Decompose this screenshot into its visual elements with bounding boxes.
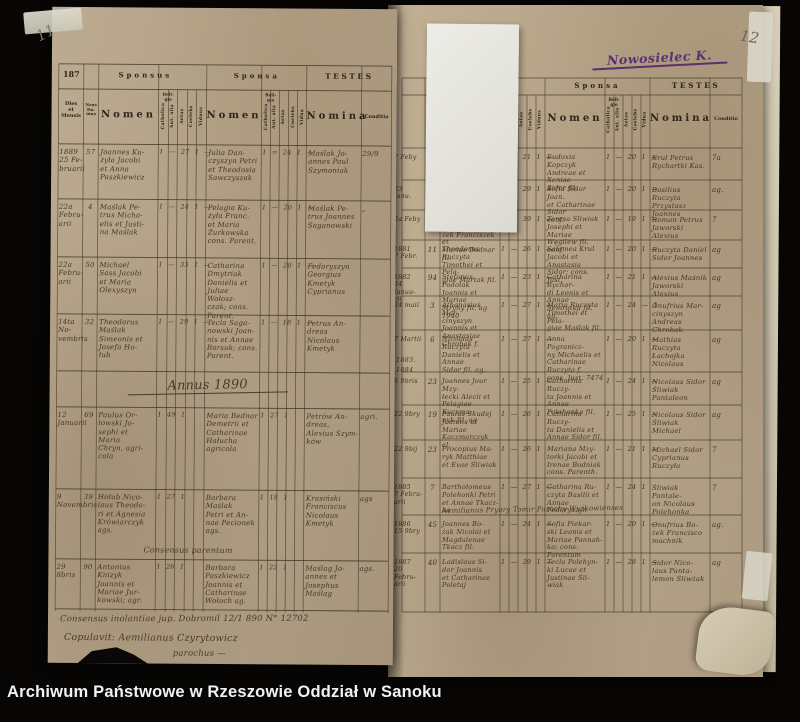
entry-house-number: 69 bbox=[82, 411, 95, 419]
entry-bride-name: Catharina Ruczy- ta Danielis et Annae Si… bbox=[547, 411, 604, 442]
column-group-testes: TESTES bbox=[307, 72, 392, 82]
column-group-testes: TESTES bbox=[650, 81, 742, 90]
column-header-nomina: Nomina bbox=[306, 111, 361, 122]
entry-groom-name: Bartholomeus Polehonki Petri et Annae Tk… bbox=[442, 484, 499, 515]
entry-witnesses: Petrów An- dreas, Alexius Szym- ków bbox=[306, 413, 358, 446]
entry-bride-marks: 1 — 20 1 — bbox=[606, 336, 649, 344]
entry-conditio: „ bbox=[362, 205, 390, 213]
entry-bride-name: Barbara Paszkiewicz Joannis et Catharina… bbox=[205, 564, 257, 606]
entry-groom-name: Michael Sass Jacobi et Maria Olexyszyn bbox=[99, 261, 156, 294]
entry-conditio: 7 bbox=[712, 484, 740, 492]
entry-groom-marks: 1 — 26 1 bbox=[501, 411, 544, 419]
entry-house-number: 90 bbox=[81, 563, 94, 571]
column-header-coelebs: Coelebs bbox=[189, 101, 194, 131]
column-header-coelebs: Coelebs bbox=[291, 102, 296, 132]
entry-conditio: 7 bbox=[712, 446, 740, 454]
entry-date: 29 8bris bbox=[56, 563, 80, 580]
entry-bride-marks: 1 27 1 bbox=[260, 412, 303, 420]
entry-bride-name: Sofia Piekar- ski Leonis et Mariae Panna… bbox=[547, 521, 604, 560]
entry-witnesses: Nicolaus Sidor Śliwiak Pantaleon bbox=[652, 378, 709, 402]
entry-conditio: 7 bbox=[712, 216, 740, 224]
tape-scrap-top-right bbox=[747, 12, 773, 83]
entry-groom-name: Maślak Pe- trus Micha- elis et Justi- na… bbox=[100, 203, 157, 236]
entry-witnesses: Onufrius Mar- cinyszyn Andreas Chrobak bbox=[652, 302, 709, 334]
entry-bride-marks: 1 — 28 1 — bbox=[606, 559, 649, 567]
entry-house-number: 3 bbox=[426, 302, 439, 310]
entry-bride-name: Catharina Ru- czyta Basilii et Annae Fed… bbox=[547, 484, 604, 515]
entry-witnesses: Fedoryszyn Georgius Kmetyk Cyprianus bbox=[307, 263, 359, 296]
column-header-dies: Dies et Mensis bbox=[59, 102, 84, 119]
entry-groom-name: Paulus Skudej Joannis et Mariae Kaczmarc… bbox=[442, 411, 499, 450]
entry-witnesses: Mathias Ruczyta Łachojka Nicolaus bbox=[652, 336, 709, 368]
entry-conditio: ag bbox=[712, 378, 740, 386]
entry-groom-name: Theodorus Maślak Simeonis et Josefa Ho- … bbox=[99, 318, 156, 360]
consensus-interline-note: Consensus parentum bbox=[143, 545, 343, 556]
archival-scan-photo: Sponsa TESTES Nomen Reli- gio Reli- gio … bbox=[0, 0, 800, 722]
column-header-aut-alia: Aut. alia bbox=[616, 105, 621, 135]
entry-witnesses: Michael Sidor Cyprianus Ruczyła bbox=[652, 446, 709, 470]
entry-bride-marks: 1 — 20 1 — bbox=[606, 154, 649, 162]
entry-house-number: 23 bbox=[426, 378, 439, 386]
column-group-sponsa: Sponsa bbox=[207, 71, 307, 81]
entry-groom-marks: 1 — 24 1 — bbox=[159, 204, 205, 212]
entry-conditio: ag bbox=[712, 302, 740, 310]
entry-date: 12 Januarii bbox=[57, 411, 81, 428]
entry-witnesses: Maślag Jo- annes et Josephus Maślag bbox=[305, 565, 357, 598]
entry-conditio: agri. bbox=[360, 413, 388, 421]
entry-witnesses: Basilius Ruczyta Przystasz Joannes bbox=[652, 186, 709, 218]
column-header-conditio: Conditio bbox=[362, 115, 392, 121]
column-header-catholica: Catholica bbox=[607, 105, 612, 135]
entry-groom-marks: 1 — 29 1 — bbox=[501, 559, 544, 567]
consensus-footer-note: Consensus inolantiae jup. Dobromil 12/1 … bbox=[60, 614, 390, 625]
entry-date: 9 Novembris bbox=[57, 493, 81, 510]
entry-witnesses: Krul Petrus Rychartki Kas. bbox=[652, 154, 709, 170]
entry-house-number: 6 bbox=[426, 336, 439, 344]
entry-bride-name: Maria Ruczyta Timothei et Pela- giae Maś… bbox=[547, 302, 604, 333]
entry-bride-marks: 1 = 24 1 — bbox=[262, 149, 305, 157]
register-left-page: 187 Sponsus Sponsa TESTES Dies et Mensis… bbox=[48, 7, 398, 665]
column-header-nomina: Nomina bbox=[650, 113, 710, 124]
entry-groom-marks: 1 — 27 1 — bbox=[501, 484, 544, 492]
entry-date: 22a Febru- arii bbox=[58, 261, 82, 286]
column-header-nomen: Nomen bbox=[207, 110, 262, 121]
column-header-aetas: Aetas bbox=[520, 105, 525, 135]
column-header-aut-alia: Aut. alia bbox=[272, 102, 277, 132]
entry-date: 1889 25 Fe- bruarii bbox=[59, 148, 83, 173]
entry-conditio: 7a bbox=[712, 154, 740, 162]
entry-groom-name: Hołub Nico- laus Theodo- ri et Agnesia K… bbox=[98, 493, 155, 535]
column-group-sponsa: Sponsa bbox=[545, 81, 650, 90]
copulavit-note-line2: parochus — bbox=[173, 649, 293, 660]
printed-year-prefix: 187 bbox=[59, 69, 84, 79]
entry-bride-marks: 1 — 20 1 — bbox=[606, 246, 649, 254]
entry-bride-name: Maria Bednar Demetrii et Catharinae Hału… bbox=[206, 412, 258, 454]
entry-conditio: ags. bbox=[359, 565, 387, 573]
entry-bride-marks: 1 — 20 1 — bbox=[262, 204, 305, 212]
entry-witnesses: Krasiński Franciscus Nicolaus Kmetyk bbox=[306, 495, 358, 528]
entry-groom-marks: 1 27 1 bbox=[157, 494, 203, 502]
entry-bride-marks: 1 — 24 — 1 bbox=[606, 302, 649, 310]
entry-groom-marks: 1 — 26 1 — bbox=[501, 246, 544, 254]
entry-groom-marks: 1 26 1 bbox=[156, 564, 202, 572]
entry-bride-marks: 1 — 21 1 — bbox=[606, 274, 649, 282]
entry-conditio: ag bbox=[712, 411, 740, 419]
entry-bride-name: Tecla Saga- nowski Joan- nis et Annae Bo… bbox=[207, 319, 259, 361]
entry-groom-marks: 1 — 26 1 bbox=[501, 446, 544, 454]
entry-groom-name: Joannes Bo- żak Nicolai et Magdalenae Tk… bbox=[442, 521, 499, 552]
entry-witnesses: Onufrius Bo- żek Francisco machnik bbox=[652, 521, 709, 545]
column-header-catholica: Catholica bbox=[161, 101, 166, 131]
entry-groom-marks: 1 — 23 1 — bbox=[501, 274, 544, 282]
entry-bride-name: Anna Pogranicz- ny Michaelis et Catharin… bbox=[547, 336, 604, 383]
entry-house-number: 50 bbox=[83, 261, 96, 269]
column-header-vidua: Vidua bbox=[643, 105, 648, 135]
entry-groom-name: Antonius Knizyk Joannis et Mariae Jur- k… bbox=[97, 563, 154, 605]
copulavit-note: Copulavit: Aemilianus Czyrytowicz bbox=[64, 632, 334, 645]
entry-date: 22a Febru- arii bbox=[59, 203, 83, 228]
column-header-viduus: Viduus bbox=[199, 101, 204, 131]
entry-date: 14ta No- vembris bbox=[58, 318, 82, 343]
entry-house-number: 39 bbox=[82, 493, 95, 501]
entry-house-number: 11 bbox=[426, 246, 439, 254]
entry-witnesses: Maślak Jo- annes Paul Szymoniak bbox=[308, 150, 360, 175]
entry-witnesses: Petrus An- dreas Nicolaus Kmetyk bbox=[307, 320, 359, 353]
entry-bride-marks: 1 — 20 1 — bbox=[606, 521, 649, 529]
entry-groom-marks: 1 49 1 bbox=[157, 412, 203, 420]
column-header-coelebs: Coelebs bbox=[634, 105, 639, 135]
entry-groom-marks: 1 — 29 1 — bbox=[158, 319, 204, 327]
pencil-page-number-right: 12 bbox=[739, 26, 761, 47]
entry-conditio: 29/9 bbox=[362, 150, 390, 158]
column-header-nomen: Nomen bbox=[545, 113, 605, 124]
loose-paper-overlay bbox=[425, 24, 519, 233]
tape-scrap-right-edge bbox=[742, 551, 773, 601]
entry-witnesses: Maślak Pe- trus Joannes Saganowski bbox=[308, 205, 360, 230]
entry-bride-marks: 1 — 24 1 bbox=[606, 484, 649, 492]
entry-house-number: 32 bbox=[83, 318, 96, 326]
entry-bride-marks: 1 — 20 1 — bbox=[606, 186, 649, 194]
entry-groom-name: Joannes Ku- żyła Jacobi et Anna Paszkiew… bbox=[100, 148, 157, 181]
entry-groom-marks: 1 — 27 1 — bbox=[159, 149, 205, 157]
entry-groom-marks: 1 — 25 1 — bbox=[501, 378, 544, 386]
entry-witnesses: Alexius Maśnik Jaworski Alexius bbox=[652, 274, 709, 298]
entry-bride-marks: 1 — 24 1 — bbox=[606, 378, 649, 386]
column-header-aetas: Aetas bbox=[281, 102, 286, 132]
entry-bride-marks: 1 — 25 1 — bbox=[606, 411, 649, 419]
entry-groom-marks: 1 — 27 1 — bbox=[501, 336, 544, 344]
column-header-nrus-domus: Nrus Do- mus bbox=[84, 103, 99, 117]
entry-house-number: 7 bbox=[426, 484, 439, 492]
entry-bride-name: Catharina Dmytriak Danielis et Juliae Wo… bbox=[207, 262, 259, 320]
entry-bride-marks: 1 — 20 1 — bbox=[261, 262, 304, 270]
entry-groom-name: Procopius Ma- ryk Matthiae et Evae Śliwi… bbox=[442, 446, 499, 469]
entry-witnesses: Sidor Nico- laus Panta- lemon Śliwżak bbox=[652, 559, 709, 583]
entry-groom-marks: 1 — 24 1 — bbox=[501, 521, 544, 529]
entry-conditio: ag. bbox=[712, 521, 740, 529]
column-header-aetas: Aetas bbox=[625, 105, 630, 135]
entry-groom-marks: 1 — 33 1 — bbox=[158, 262, 204, 270]
column-header-conditio: Conditio bbox=[710, 117, 742, 123]
entry-conditio: ag bbox=[712, 246, 740, 254]
entry-bride-name: Pelagia Ku- żyła Franc. et Maria Żurkows… bbox=[208, 204, 260, 246]
entry-witnesses: Roman Petrus Jaworski Alexius bbox=[652, 216, 709, 240]
entry-conditio: ag bbox=[712, 559, 740, 567]
entry-witnesses: Nicolaus Sidor Śliwiak Michael bbox=[652, 411, 709, 435]
entry-bride-name: Julia Dan- czyszyn Petri et Theodosia Sa… bbox=[208, 149, 260, 182]
column-header-vidua: Vidua bbox=[300, 102, 305, 132]
column-group-sponsus: Sponsus bbox=[84, 70, 207, 80]
column-header-catholica: Catholica bbox=[264, 102, 269, 132]
entry-bride-marks: 1 — 18 1 — bbox=[261, 319, 304, 327]
column-header-coelebs: Coelebs bbox=[529, 105, 534, 135]
entry-bride-marks: 1 — 21 1 — bbox=[606, 446, 649, 454]
archive-caption: Archiwum Państwowe w Rzeszowie Oddział w… bbox=[7, 683, 442, 702]
entry-bride-marks: 1 18 1 bbox=[260, 494, 303, 502]
entry-conditio: ag. bbox=[712, 186, 740, 194]
entry-bride-marks: 1 — 19 1 — bbox=[606, 216, 649, 224]
entry-house-number: 4 bbox=[84, 203, 97, 211]
entry-conditio: ag bbox=[712, 274, 740, 282]
entry-bride-marks: 1 22 1 bbox=[259, 564, 302, 572]
entry-bride-name: Tecla Polehyn- ki Lucae et Justinae Śli-… bbox=[547, 559, 604, 590]
column-header-aetas: Aetas bbox=[180, 101, 185, 131]
section-heading-annus: Annus 1890 bbox=[128, 376, 288, 395]
entry-house-number: 45 bbox=[426, 521, 439, 529]
entry-house-number: 19 bbox=[426, 411, 439, 419]
entry-bride-name: Barbara Maślak Petri et An- nae Pecionek… bbox=[206, 494, 258, 536]
entry-witnesses: Ruczyta Daniel Sidor Joannes bbox=[652, 246, 709, 262]
entry-conditio: ags bbox=[360, 495, 388, 503]
column-header-nomen: Nomen bbox=[99, 109, 159, 120]
entry-conditio: ag bbox=[712, 336, 740, 344]
entry-groom-marks: 1 — 27 1 — bbox=[501, 302, 544, 310]
entry-groom-name: Paulus Or- łowski Jo- sephi et Maria Chr… bbox=[98, 411, 155, 461]
column-header-viduus: Viduus bbox=[538, 105, 543, 135]
entry-groom-name: Ladislaus Si- dor Joannis et Catharinae … bbox=[442, 559, 499, 590]
entry-house-number: 94 bbox=[426, 274, 439, 282]
entry-house-number: 23 bbox=[426, 446, 439, 454]
entry-house-number: 57 bbox=[84, 148, 97, 156]
entry-groom-name: Nicolaus Ruczyta Danielis et Annae Sidor… bbox=[442, 336, 499, 375]
entry-witnesses: Śliwiak Pantale- on Nicolaus Polehonka bbox=[652, 484, 709, 516]
entry-house-number: 40 bbox=[426, 559, 439, 567]
column-header-aut-alia: Aut. alia bbox=[170, 101, 175, 131]
entry-bride-name: Mariana Mzy- torki Jacobi et Irenae Bodn… bbox=[547, 446, 604, 477]
